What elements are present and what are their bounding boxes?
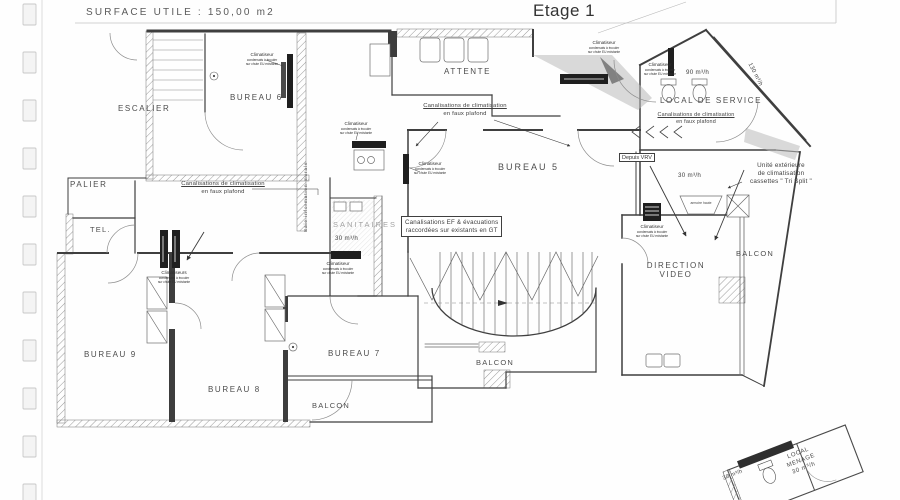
note-canalisations-1: Canalisations de climatisation en faux p… bbox=[418, 103, 512, 118]
note-canalisations-2: Canalisations de climatisation en faux p… bbox=[176, 181, 270, 196]
room-label-tel: TEL. bbox=[90, 225, 111, 234]
furniture bbox=[147, 38, 749, 367]
room-label-balcon-sw: BALCON bbox=[312, 401, 350, 410]
clim-line: sur chute EU existante bbox=[638, 72, 682, 76]
note-climatiseur-corridor: Climatiseur condensats à écouler sur chu… bbox=[408, 161, 452, 175]
note-line: Canalisations EF & évacuations bbox=[405, 219, 498, 227]
note-line: Canalisations de climatisation bbox=[648, 112, 744, 119]
page-perforations bbox=[23, 4, 36, 500]
note-climatiseur-top: Climatiseur condensats à écouler sur chu… bbox=[582, 40, 626, 54]
note-depuis-vrv: Depuis VRV bbox=[619, 153, 655, 162]
seat bbox=[646, 354, 662, 367]
sanitary-fixture bbox=[334, 202, 346, 211]
room-label-bureau8: BUREAU 8 bbox=[208, 385, 261, 394]
room-label-palier: PALIER bbox=[70, 180, 107, 189]
note-climatiseur-bureau6: Climatiseur condensats à écouler sur chu… bbox=[240, 52, 284, 66]
stairs bbox=[153, 40, 218, 100]
room-label-bureau6: BUREAU 6 bbox=[230, 93, 283, 102]
clim-line: sur chute EU existante bbox=[334, 131, 378, 135]
note-climatiseur-sanitaires: Climatiseur condensats à écouler sur chu… bbox=[316, 261, 360, 275]
room-label-direction-video: DIRECTION VIDEO bbox=[644, 261, 708, 279]
note-baie-information: Baie information murale bbox=[303, 161, 308, 232]
direction-video-line2: VIDEO bbox=[644, 270, 708, 279]
note-line: Canalisations de climatisation bbox=[176, 181, 270, 189]
note-canalisations-3: Canalisations de climatisation en faux p… bbox=[648, 112, 744, 126]
appliance bbox=[354, 150, 384, 170]
note-climatiseur-b5-left: Climatiseur condensats à écouler sur chu… bbox=[334, 121, 378, 135]
note-tri-split: Unité extérieure de climatisation casset… bbox=[737, 162, 825, 187]
room-label-attente: ATTENTE bbox=[444, 67, 491, 76]
room-label-bureau7: BUREAU 7 bbox=[328, 349, 381, 358]
armoire-haute-outline bbox=[680, 196, 722, 214]
note-climatiseur-service: Climatiseur condensats à écouler sur chu… bbox=[638, 62, 682, 76]
flow-30-sanitaires: 30 m³/h bbox=[335, 235, 358, 242]
note-line: cassettes " Tri Split " bbox=[737, 178, 825, 186]
clim-line: sur chute EU existante bbox=[408, 171, 452, 175]
note-line: en faux plafond bbox=[176, 189, 270, 197]
waiting-chair bbox=[444, 38, 464, 62]
note-ef-box: Canalisations EF & évacuations raccordée… bbox=[401, 216, 502, 237]
cabinet bbox=[370, 44, 390, 76]
direction-video-line1: DIRECTION bbox=[644, 261, 708, 270]
surface-utile-label: SURFACE UTILE : 150,00 m2 bbox=[86, 7, 275, 18]
room-label-escalier: ESCALIER bbox=[118, 104, 170, 113]
room-label-local-de-service: LOCAL DE SERVICE bbox=[660, 96, 762, 105]
page-title: Etage 1 bbox=[533, 1, 595, 21]
waiting-chair bbox=[468, 38, 488, 62]
note-line: raccordées sur existants en GT bbox=[405, 227, 498, 235]
rotunda-bay bbox=[410, 252, 598, 336]
room-label-balcon-sud: BALCON bbox=[476, 358, 514, 367]
waiting-chair bbox=[420, 38, 440, 62]
room-label-bureau5: BUREAU 5 bbox=[498, 162, 559, 172]
scanned-floorplan-sheet: SURFACE UTILE : 150,00 m2 Etage 1 ESCALI… bbox=[0, 0, 900, 500]
clim-line: sur chute EU existante bbox=[240, 62, 284, 66]
flow-30-east: 30 m³/h bbox=[678, 172, 701, 179]
note-line: en faux plafond bbox=[418, 111, 512, 119]
note-climatiseur-direction-video: Climatiseur condensats à écouler sur chu… bbox=[630, 224, 674, 238]
room-label-sanitaires: SANITAIRES bbox=[333, 220, 397, 229]
note-line: en faux plafond bbox=[648, 119, 744, 126]
sanitary-fixture bbox=[350, 202, 362, 211]
clim-line: sur chute EU existante bbox=[582, 50, 626, 54]
clim-line: sur chute EU existante bbox=[150, 280, 198, 284]
clim-line: sur chute EU existante bbox=[316, 271, 360, 275]
flow-90: 90 m³/h bbox=[686, 69, 709, 76]
room-label-balcon-est: BALCON bbox=[736, 249, 774, 258]
note-line: Canalisations de climatisation bbox=[418, 103, 512, 111]
room-label-bureau9: BUREAU 9 bbox=[84, 350, 137, 359]
clim-line: sur chute EU existante bbox=[630, 234, 674, 238]
seat bbox=[664, 354, 680, 367]
note-armoire-haute: armoire haute bbox=[682, 201, 720, 205]
note-climatiseurs: Climatiseurs condensats à écouler sur ch… bbox=[150, 270, 198, 284]
note-line: Unité extérieure bbox=[737, 162, 825, 170]
note-line: de climatisation bbox=[737, 170, 825, 178]
